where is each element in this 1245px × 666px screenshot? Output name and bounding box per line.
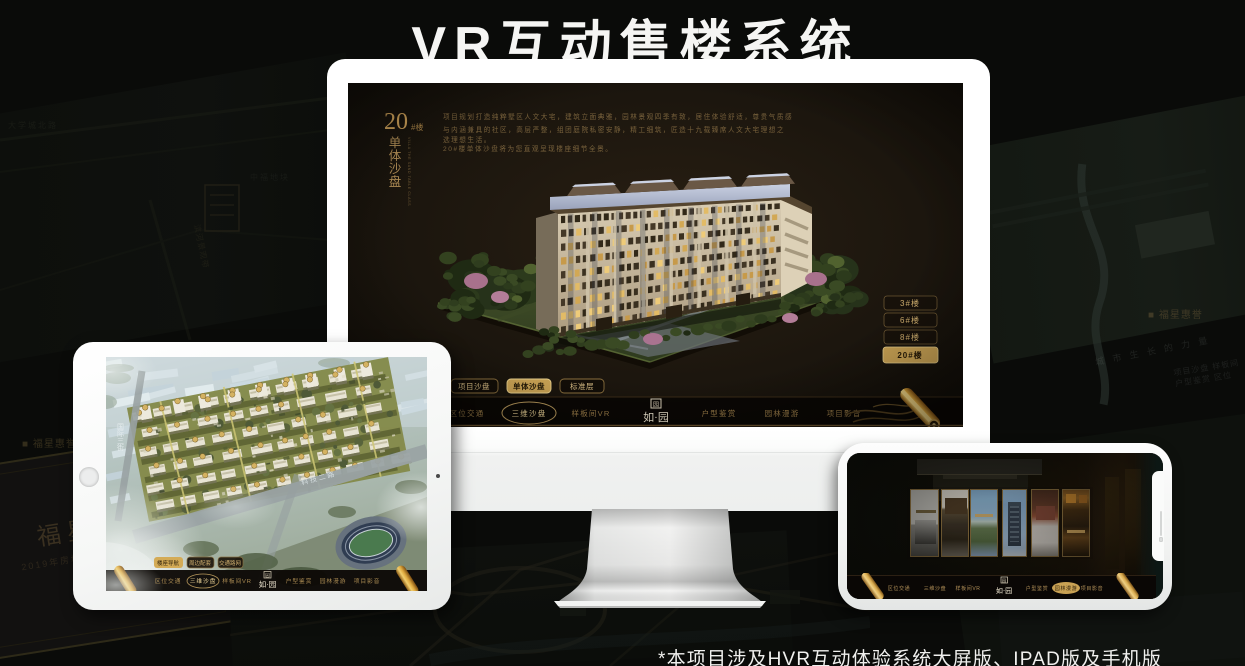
svg-text:周边配套: 周边配套 bbox=[189, 559, 212, 567]
svg-text:区位交通: 区位交通 bbox=[888, 585, 910, 592]
svg-text:样板间VR: 样板间VR bbox=[956, 585, 981, 592]
svg-text:楼座导航: 楼座导航 bbox=[157, 559, 180, 567]
svg-text:项目影音: 项目影音 bbox=[1081, 585, 1103, 592]
svg-text:三维沙盘: 三维沙盘 bbox=[924, 585, 946, 592]
svg-text:项目影音: 项目影音 bbox=[354, 577, 380, 585]
svg-text:城 市 生 长 的 力 量: 城 市 生 长 的 力 量 bbox=[1094, 334, 1211, 367]
svg-text:户型鉴赏: 户型鉴赏 bbox=[286, 577, 312, 585]
svg-text:中福地块: 中福地块 bbox=[250, 172, 290, 182]
svg-text:国际三街: 国际三街 bbox=[117, 423, 125, 452]
svg-text:三维沙盘: 三维沙盘 bbox=[190, 577, 216, 585]
svg-text:户型鉴赏: 户型鉴赏 bbox=[1026, 585, 1048, 592]
svg-text:如·园: 如·园 bbox=[996, 586, 1012, 595]
svg-text:交通路网: 交通路网 bbox=[219, 559, 242, 567]
svg-text:大学城北路: 大学城北路 bbox=[8, 120, 58, 130]
svg-text:样板间VR: 样板间VR bbox=[222, 577, 251, 585]
svg-text:园林漫游: 园林漫游 bbox=[320, 577, 346, 585]
svg-text:园林漫游: 园林漫游 bbox=[1055, 585, 1077, 592]
svg-text:如·园: 如·园 bbox=[259, 579, 277, 589]
